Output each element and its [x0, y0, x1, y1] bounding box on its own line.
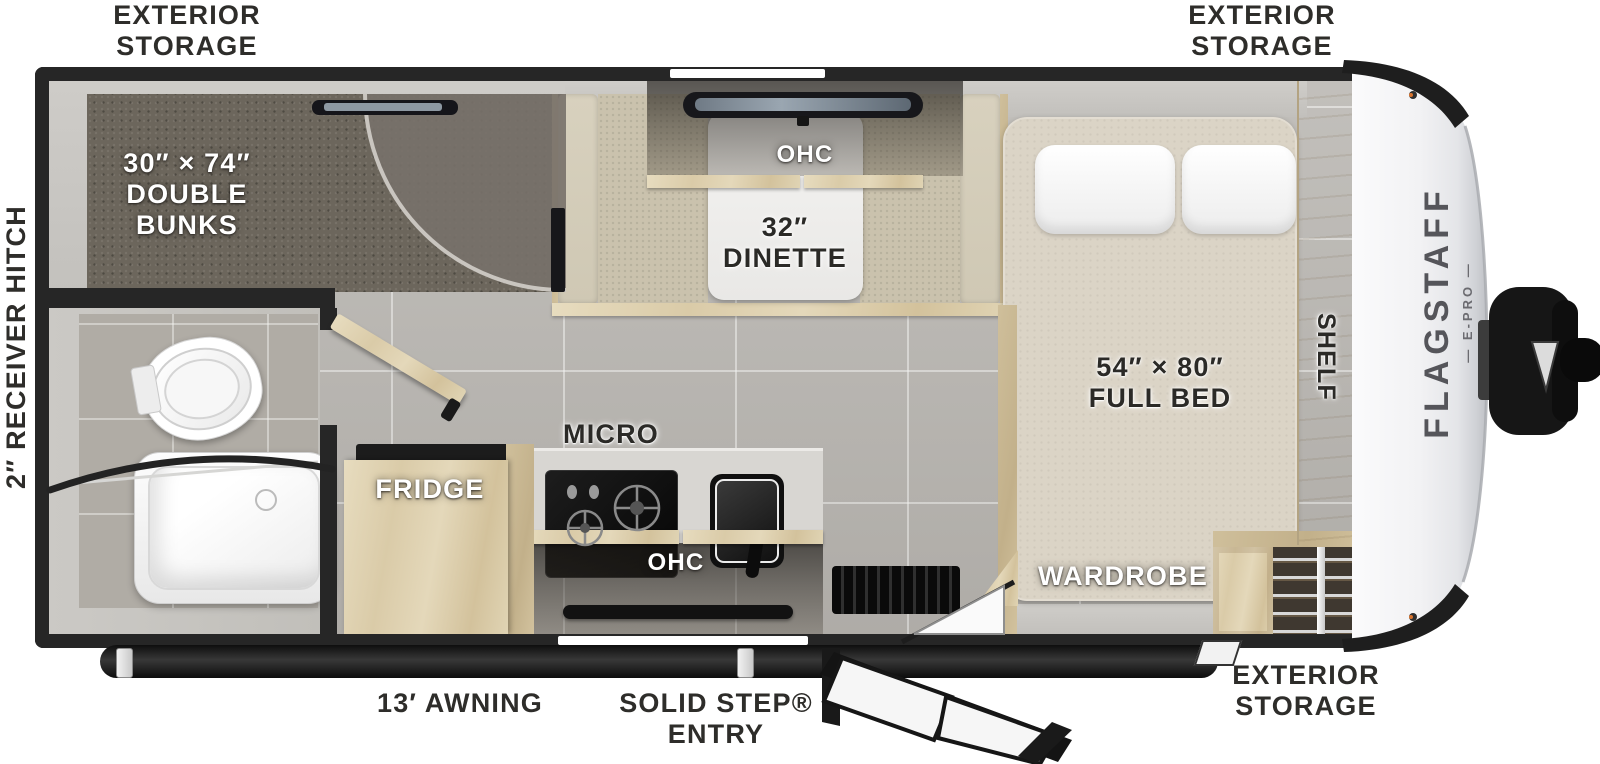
bunk-curve: [312, 94, 566, 292]
brand-subname: — E-PRO —: [1460, 162, 1475, 462]
detail-overlay: [0, 0, 1600, 764]
label-double-bunks: 30″ × 74″ DOUBLE BUNKS: [62, 148, 312, 241]
label-wardrobe: WARDROBE: [998, 561, 1248, 592]
hitch-coupler: [1560, 338, 1600, 382]
label-exterior-storage-bottom-right: EXTERIOR STORAGE: [1181, 660, 1431, 722]
floorplan-canvas: EXTERIOR STORAGE EXTERIOR STORAGE 2″ REC…: [0, 0, 1600, 764]
brand-logo: FLAGSTAFF — E-PRO —: [1418, 162, 1486, 462]
label-awning: 13′ AWNING: [335, 688, 585, 719]
receiver-hitch: [1478, 287, 1600, 435]
label-shelf: SHELF: [1311, 277, 1341, 437]
label-fridge: FRIDGE: [305, 474, 555, 505]
label-exterior-storage-top-left: EXTERIOR STORAGE: [62, 0, 312, 62]
brand-name: FLAGSTAFF: [1418, 162, 1457, 462]
label-exterior-storage-top-right: EXTERIOR STORAGE: [1137, 0, 1387, 62]
label-full-bed: 54″ × 80″ FULL BED: [1035, 352, 1285, 414]
bunk-ladder: [551, 208, 565, 292]
shower-rod: [50, 459, 332, 490]
cooktop-burners: [567, 485, 659, 545]
label-solid-step-entry: SOLID STEP® ENTRY: [591, 688, 841, 750]
label-kitchen-ohc: OHC: [616, 549, 736, 577]
label-micro: MICRO: [486, 419, 736, 450]
label-receiver-hitch: 2″ RECEIVER HITCH: [1, 202, 31, 492]
label-dinette-ohc: OHC: [745, 141, 865, 169]
entry-steps: [820, 648, 1072, 764]
label-dinette: 32″ DINETTE: [660, 212, 910, 274]
